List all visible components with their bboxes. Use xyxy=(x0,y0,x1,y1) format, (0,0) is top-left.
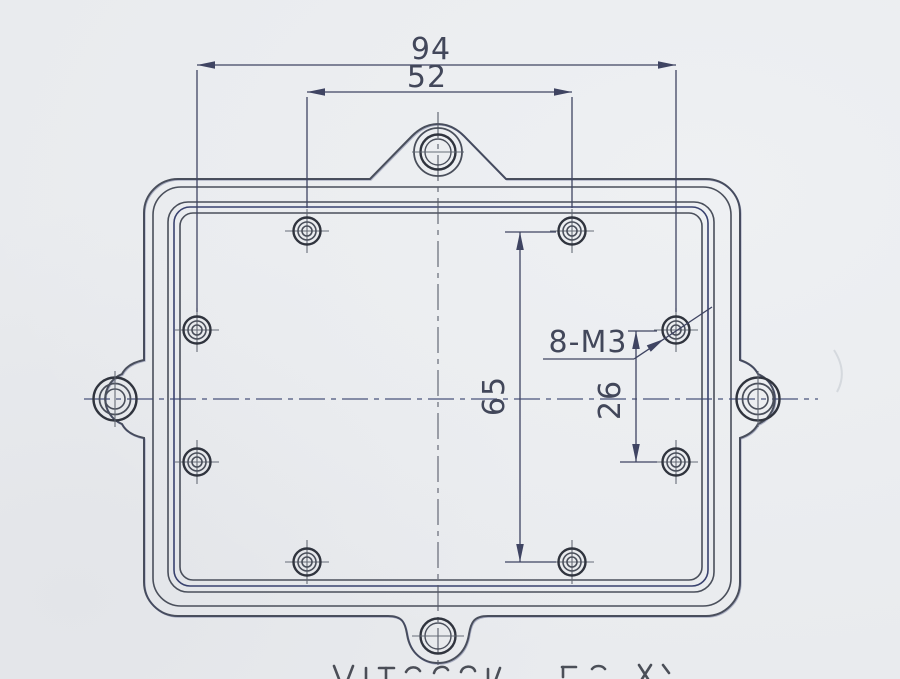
dim-65-arrow-top xyxy=(516,232,524,250)
panel-outline-outer xyxy=(168,202,714,592)
paper-smudge xyxy=(834,350,842,392)
thread-callout-leader xyxy=(634,307,712,359)
thread-callout-arrowhead xyxy=(647,336,666,352)
flange-inner-edge xyxy=(153,187,731,606)
screw-hole xyxy=(654,308,698,352)
mounting-hole-left xyxy=(94,371,137,427)
cutoff-caption-strokes xyxy=(334,665,669,679)
mounting-hole-top xyxy=(412,128,464,176)
screw-hole xyxy=(285,209,329,253)
drawing-sheet: 94 52 65 26 8-M3 xyxy=(0,0,900,679)
screw-hole xyxy=(175,440,219,484)
screw-hole xyxy=(285,540,329,584)
screw-hole xyxy=(175,308,219,352)
dim-26-arrow-bottom xyxy=(632,444,640,462)
dim-65-label: 65 xyxy=(477,376,512,416)
dim-94-arrow-left xyxy=(197,61,215,69)
mounting-hole-right xyxy=(737,371,780,427)
outline-scan-fringe xyxy=(106,125,776,664)
technical-drawing: 94 52 65 26 8-M3 xyxy=(0,0,900,679)
part-outline-group xyxy=(105,124,776,664)
screw-hole xyxy=(550,209,594,253)
dim-52-arrow-right xyxy=(554,88,572,96)
screw-hole xyxy=(654,440,698,484)
dim-65-arrow-bottom xyxy=(516,544,524,562)
callout-8m3: 8-M3 xyxy=(543,307,712,360)
thread-callout-label: 8-M3 xyxy=(549,325,628,360)
dim-52-arrow-left xyxy=(307,88,325,96)
outer-flange-outline xyxy=(105,124,775,663)
dim-52-label: 52 xyxy=(407,60,447,95)
dim-26-label: 26 xyxy=(593,380,628,420)
screw-hole xyxy=(550,540,594,584)
dim-26-arrow-top xyxy=(632,331,640,349)
dimension-65: 65 xyxy=(477,232,556,562)
dim-94-arrow-right xyxy=(658,61,676,69)
